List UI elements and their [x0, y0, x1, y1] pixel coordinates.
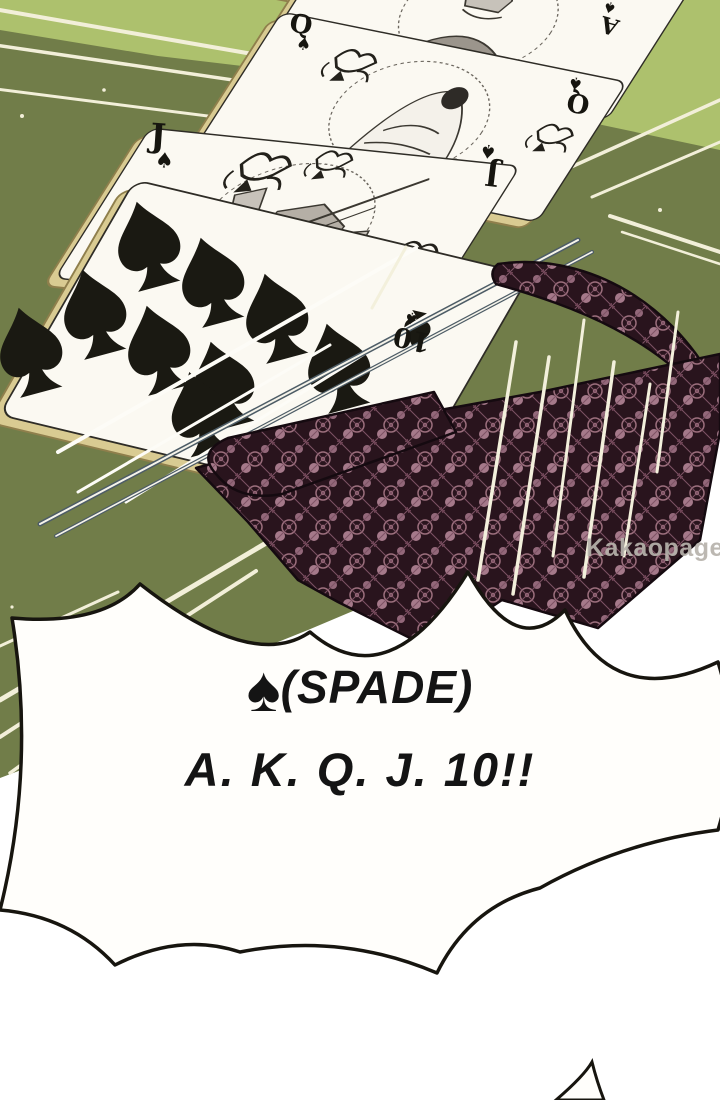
spade-icon: ♠: [247, 653, 281, 725]
bubble-line1-text: (SPADE): [281, 661, 474, 713]
spade-suit-icon: ♠: [403, 310, 420, 326]
ten-corner-label-rotated: 10 ♠: [392, 309, 437, 354]
watermark-brand: Kakaopage: [586, 534, 720, 562]
spade-suit-icon: ♠: [154, 151, 174, 170]
spade-suit-icon: ♠: [479, 142, 498, 160]
spade-suit-icon: ♠: [567, 74, 585, 91]
jack-corner-label: J ♠: [138, 121, 176, 170]
queen-rank: Q: [565, 90, 591, 116]
spade-suit-icon: ♠: [295, 37, 313, 54]
jack-corner-label-rotated: J ♠: [476, 142, 512, 188]
speech-bubble-text: ♠(SPADE) A. K. Q. J. 10!!: [90, 652, 630, 797]
bubble-tip-fragment: [556, 1062, 604, 1100]
jack-rank: J: [484, 160, 501, 187]
kakaopage-watermark: Kakaopage .co.id: [586, 534, 720, 563]
webtoon-panel: J ♠ J ♠ Q ♠ Q ♠ A ♠ 10 ♠ ♠(SPADE) A. K. …: [0, 0, 720, 1100]
bubble-line-2: A. K. Q. J. 10!!: [90, 742, 630, 797]
bubble-line-1: ♠(SPADE): [90, 652, 630, 726]
